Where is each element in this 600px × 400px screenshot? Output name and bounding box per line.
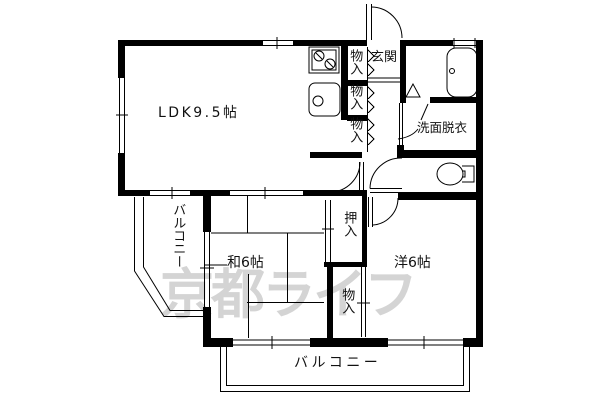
window-ldk-top — [263, 37, 293, 49]
room-label-genkan: 玄関 — [371, 51, 397, 65]
balcony-label-left: バルコニー — [170, 203, 184, 268]
walls — [118, 40, 483, 347]
closet-label-storage4: 物入 — [339, 288, 353, 314]
washroom-leader — [398, 129, 418, 139]
balcony-left-outline — [135, 197, 204, 317]
fixtures — [309, 47, 477, 185]
genkan-step — [368, 78, 402, 82]
room-label-youshitsu: 洋6帖 — [394, 256, 431, 271]
floorplan: 京都ライフ — [0, 0, 600, 400]
sliding-door-storage — [357, 267, 370, 337]
sliding-door-oshiire — [322, 200, 334, 262]
closet-label-storage3: 物入 — [347, 117, 361, 143]
room-label-washitsu: 和6帖 — [227, 256, 264, 271]
closet-label-storage2: 物入 — [347, 84, 361, 110]
window-washitsu-balcony — [200, 232, 214, 307]
sliding-door-washroom — [400, 103, 403, 148]
bathtub-icon — [447, 48, 477, 97]
window-bath-top — [453, 38, 476, 48]
toilet-door — [370, 158, 402, 193]
floorplan-drawing — [0, 0, 600, 400]
ldk-hall-door — [330, 162, 364, 192]
leader-lines — [205, 104, 428, 265]
balcony-label-bottom: バルコニー — [294, 356, 381, 371]
closet-label-oshiire: 押入 — [341, 211, 355, 237]
window-youshitsu-bottom — [388, 336, 463, 349]
stove-icon — [309, 47, 339, 73]
room-label-washroom: 洗面脱衣 — [417, 121, 467, 135]
window-washitsu-bottom — [233, 336, 310, 349]
sliding-door-ldk-washitsu — [230, 187, 303, 199]
sink-icon — [309, 83, 340, 116]
room-label-ldk: LDK9.5帖 — [158, 106, 240, 121]
window-ldk-left — [116, 78, 128, 153]
toilet-icon — [437, 163, 474, 185]
bath-folding-door-icon — [406, 84, 420, 97]
youshitsu-door — [369, 197, 399, 227]
closet-label-storage1: 物入 — [347, 49, 361, 75]
entrance-door — [367, 4, 403, 40]
bathdoor-leader — [421, 104, 428, 120]
window-ldk-balcony — [150, 187, 190, 199]
